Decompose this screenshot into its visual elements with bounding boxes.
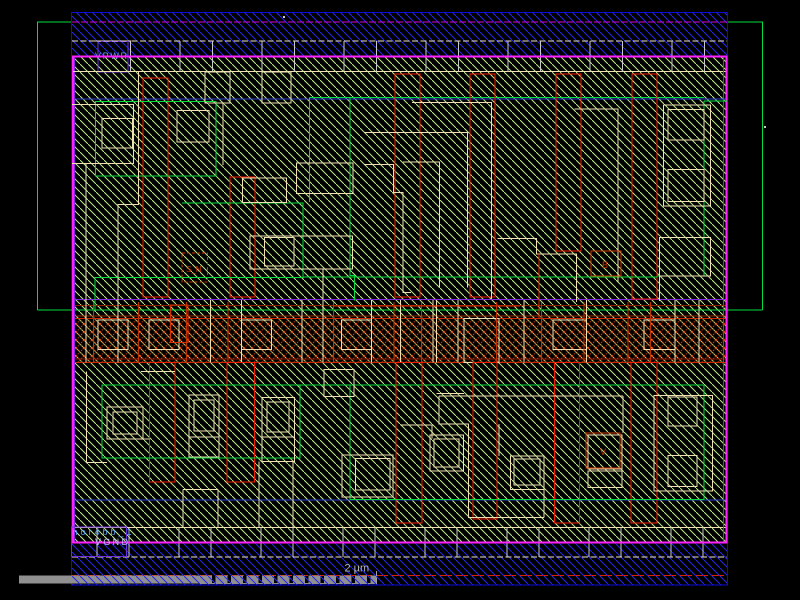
svg-text:nor4bb_1: nor4bb_1	[73, 527, 132, 537]
svg-text:S_N: S_N	[186, 265, 202, 274]
svg-text:B: B	[602, 260, 608, 270]
svg-text:VGND: VGND	[95, 537, 129, 547]
svg-text:2 µm: 2 µm	[345, 563, 370, 575]
svg-text:V: V	[600, 447, 606, 457]
